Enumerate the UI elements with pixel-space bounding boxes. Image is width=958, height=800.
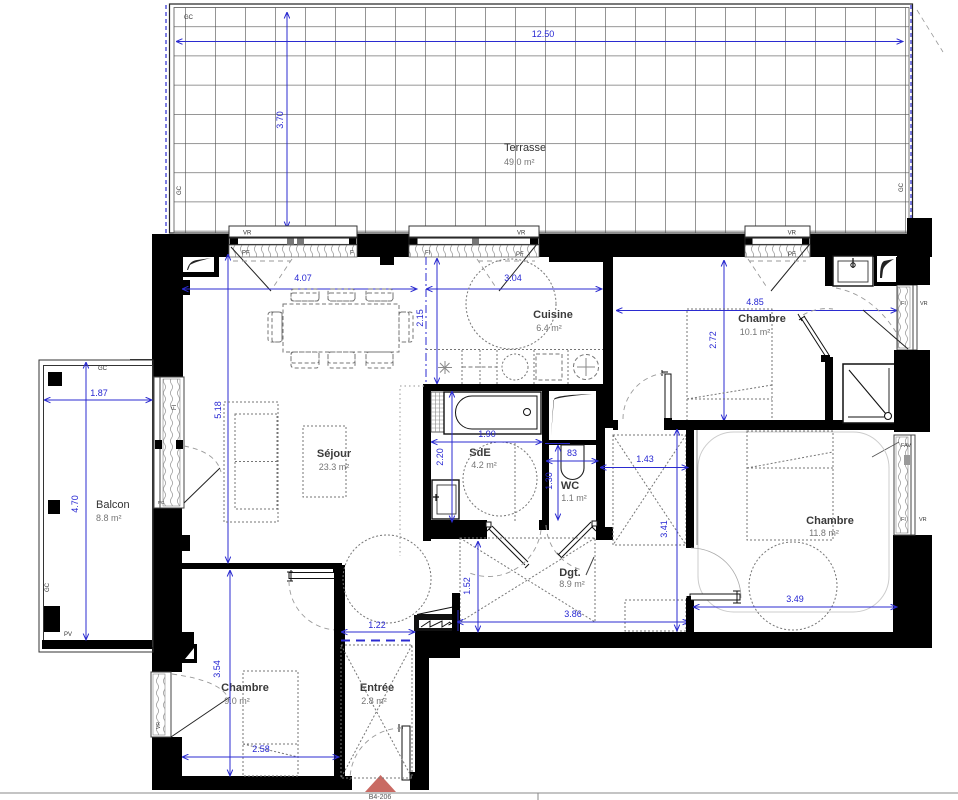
svg-text:1.90: 1.90 xyxy=(478,429,496,439)
svg-text:10.1 m²: 10.1 m² xyxy=(740,327,771,337)
svg-text:VR: VR xyxy=(920,301,928,307)
svg-text:8.8 m²: 8.8 m² xyxy=(96,513,122,523)
svg-text:1.30: 1.30 xyxy=(544,472,554,490)
svg-text:Cuisine: Cuisine xyxy=(533,309,573,321)
svg-text:VR: VR xyxy=(243,231,252,237)
svg-text:PF: PF xyxy=(788,252,796,258)
svg-text:2.15: 2.15 xyxy=(415,309,425,327)
svg-text:2.58: 2.58 xyxy=(252,744,270,754)
svg-text:9.0 m²: 9.0 m² xyxy=(224,696,250,706)
svg-text:2.72: 2.72 xyxy=(708,331,718,349)
svg-text:PC: PC xyxy=(158,500,165,505)
svg-text:VR: VR xyxy=(788,231,797,237)
svg-text:1.1 m²: 1.1 m² xyxy=(561,493,587,503)
svg-text:Chambre: Chambre xyxy=(806,515,854,527)
svg-text:GC: GC xyxy=(184,15,194,21)
svg-text:FI: FI xyxy=(901,517,906,523)
svg-text:3.49: 3.49 xyxy=(786,594,804,604)
svg-text:Chambre: Chambre xyxy=(221,682,269,694)
svg-text:8.9 m²: 8.9 m² xyxy=(559,579,585,589)
svg-text:3.41: 3.41 xyxy=(659,520,669,538)
svg-text:4.2 m²: 4.2 m² xyxy=(471,460,497,470)
svg-text:PF: PF xyxy=(242,251,250,257)
svg-text:PV: PV xyxy=(64,632,72,638)
svg-text:3.54: 3.54 xyxy=(212,660,222,678)
svg-text:B4-206: B4-206 xyxy=(369,794,392,800)
svg-text:23.3 m²: 23.3 m² xyxy=(319,462,350,472)
svg-text:Dgt.: Dgt. xyxy=(559,567,580,579)
svg-text:4.70: 4.70 xyxy=(70,495,80,513)
svg-text:GC: GC xyxy=(177,185,183,195)
svg-text:GC: GC xyxy=(98,366,108,372)
svg-text:SdE: SdE xyxy=(469,447,490,459)
svg-text:VR: VR xyxy=(919,517,927,523)
svg-text:1.22: 1.22 xyxy=(368,620,386,630)
svg-text:Terrasse: Terrasse xyxy=(504,142,546,154)
svg-text:2.8 m²: 2.8 m² xyxy=(361,696,387,706)
svg-text:WC: WC xyxy=(561,480,579,492)
svg-text:PF: PF xyxy=(516,252,524,258)
svg-text:3.70: 3.70 xyxy=(275,111,285,129)
svg-text:49.0 m²: 49.0 m² xyxy=(504,157,535,167)
svg-text:5.18: 5.18 xyxy=(213,401,223,419)
svg-text:83: 83 xyxy=(567,448,577,458)
svg-text:11.8 m²: 11.8 m² xyxy=(809,528,839,538)
svg-text:Balcon: Balcon xyxy=(96,499,130,511)
svg-text:GC: GC xyxy=(45,582,51,592)
svg-text:VR: VR xyxy=(517,231,526,237)
svg-text:Chambre: Chambre xyxy=(738,313,786,325)
svg-text:FAV: FAV xyxy=(901,443,911,449)
svg-text:3.04: 3.04 xyxy=(504,273,522,283)
svg-text:VR: VR xyxy=(156,722,162,729)
svg-text:2.20: 2.20 xyxy=(435,448,445,466)
svg-text:4.07: 4.07 xyxy=(294,273,312,283)
svg-text:1.43: 1.43 xyxy=(636,454,654,464)
svg-text:F: F xyxy=(350,251,354,257)
svg-text:FI: FI xyxy=(425,251,431,257)
svg-text:4.85: 4.85 xyxy=(746,297,764,307)
svg-text:1.87: 1.87 xyxy=(90,388,108,398)
svg-text:12.50: 12.50 xyxy=(532,29,555,39)
svg-text:1.52: 1.52 xyxy=(462,577,472,595)
svg-text:3.86: 3.86 xyxy=(564,609,582,619)
svg-text:FI: FI xyxy=(172,404,178,410)
svg-text:FI: FI xyxy=(901,301,906,307)
svg-text:Séjour: Séjour xyxy=(317,448,352,460)
svg-text:GC: GC xyxy=(899,182,905,192)
